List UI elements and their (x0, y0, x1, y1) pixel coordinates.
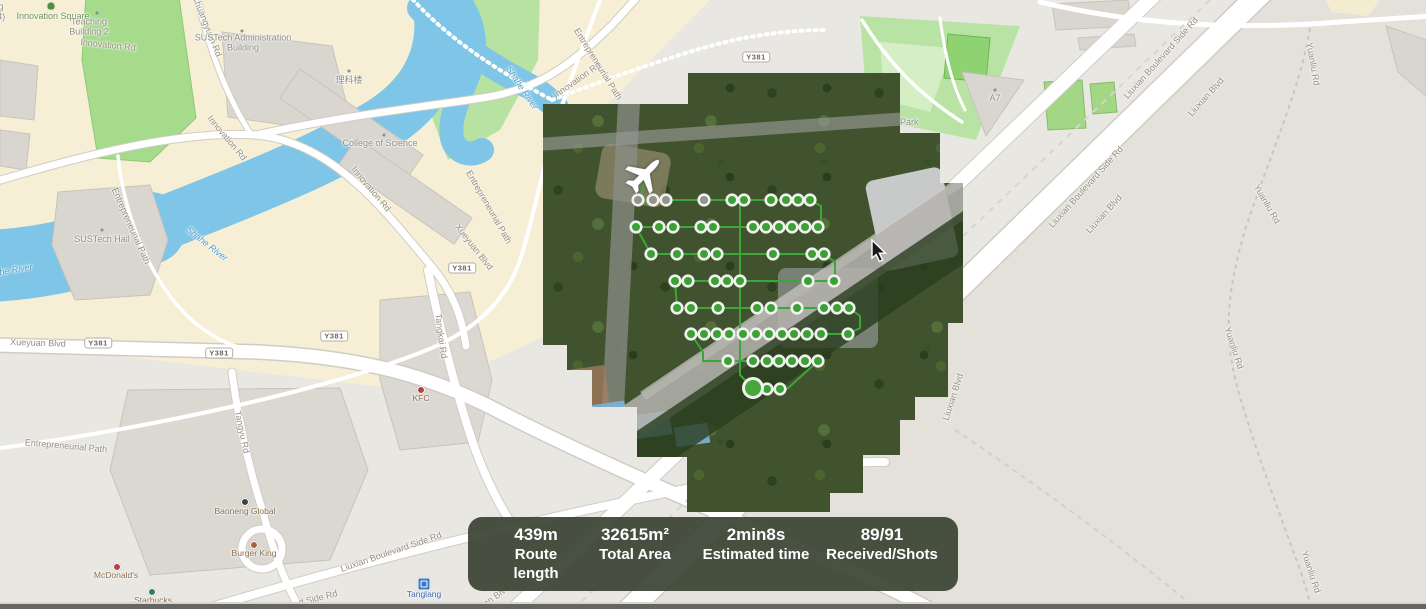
building-dot-icon (241, 30, 244, 33)
road-shield: Y381 (742, 52, 770, 63)
map-label: Liuxian Blvd (1186, 76, 1226, 119)
waypoint[interactable] (710, 276, 721, 287)
waypoint[interactable] (764, 329, 775, 340)
waypoint[interactable] (727, 195, 738, 206)
waypoint[interactable] (670, 276, 681, 287)
waypoint[interactable] (789, 329, 800, 340)
map-label: (Teaching Building 4) (0, 2, 5, 23)
map-label: Innovation Rd (205, 113, 249, 162)
poi-icon (241, 498, 249, 506)
map-label: Entrepreneurial Path (464, 169, 514, 246)
road-shield: Y381 (448, 263, 476, 274)
total-area-value: 32615m² (580, 525, 690, 545)
waypoint[interactable] (813, 356, 824, 367)
waypoint[interactable] (774, 222, 785, 233)
waypoint[interactable] (748, 222, 759, 233)
waypoint[interactable] (735, 276, 746, 287)
building-dot-icon (96, 12, 99, 15)
waypoint[interactable] (793, 195, 804, 206)
waypoint[interactable] (708, 222, 719, 233)
map-label: Shahe River (504, 65, 540, 112)
map-label: Liuxian Blvd (1084, 193, 1124, 236)
road-shield: Y381 (205, 348, 233, 359)
waypoint[interactable] (672, 249, 683, 260)
map-label: KFC (413, 394, 430, 404)
waypoint[interactable] (805, 195, 816, 206)
map-label: Entrepreneurial Path (24, 437, 107, 455)
waypoint[interactable] (699, 249, 710, 260)
map-label: Yuanliu Rd (1252, 183, 1283, 226)
waypoint[interactable] (712, 329, 723, 340)
waypoint[interactable] (774, 356, 785, 367)
waypoint[interactable] (739, 195, 750, 206)
estimated-time-value: 2min8s (690, 525, 822, 545)
waypoint[interactable] (712, 249, 723, 260)
waypoint[interactable] (724, 329, 735, 340)
aerial-road-horizontal (538, 112, 908, 151)
drone-mapping-app: Innovation RdInnovation RdInnovation RdI… (0, 0, 1426, 609)
map-label: SUSTech Administration Building (195, 33, 292, 54)
received-shots-value: 89/91 (822, 525, 942, 545)
map-label: Entrepreneurial Path (109, 186, 152, 266)
waypoint[interactable] (832, 303, 843, 314)
map-label: College of Science (342, 138, 417, 148)
building-dot-icon (383, 134, 386, 137)
waypoint[interactable] (686, 303, 697, 314)
road-shield: Y381 (320, 331, 348, 342)
poi-icon (250, 541, 258, 549)
waypoint[interactable] (696, 222, 707, 233)
waypoint[interactable] (781, 195, 792, 206)
waypoint[interactable] (819, 303, 830, 314)
map-label: Yuanliu Rd (1222, 326, 1245, 371)
waypoint[interactable] (762, 356, 773, 367)
waypoint[interactable] (748, 356, 759, 367)
home-point[interactable] (744, 379, 763, 398)
waypoint[interactable] (686, 329, 697, 340)
waypoint[interactable] (803, 276, 814, 287)
map-label: Tangyu Rd (232, 410, 251, 454)
waypoint[interactable] (800, 356, 811, 367)
waypoint[interactable] (792, 303, 803, 314)
map-label: McDonald's (94, 571, 138, 581)
waypoint[interactable] (777, 329, 788, 340)
poi-icon (148, 588, 156, 596)
waypoint[interactable] (800, 222, 811, 233)
map-label: Xueyuan Blvd (10, 337, 66, 349)
waypoint[interactable] (646, 249, 657, 260)
waypoint[interactable] (843, 329, 854, 340)
poi-icon (417, 386, 425, 394)
waypoint-captured[interactable] (699, 195, 710, 206)
stat-received-shots: 89/91 Received/Shots (822, 525, 942, 583)
map-label: 理科楼 (335, 75, 362, 85)
waypoint[interactable] (738, 329, 749, 340)
map-label: Liuxian Boulevard Side Rd (339, 530, 443, 574)
map-label: Tangkai Rd (433, 313, 450, 359)
waypoint[interactable] (813, 222, 824, 233)
waypoint[interactable] (807, 249, 818, 260)
waypoint[interactable] (713, 303, 724, 314)
waypoint[interactable] (683, 276, 694, 287)
map-label: SUSTech Hall (74, 234, 130, 244)
estimated-time-label: Estimated time (690, 545, 822, 564)
waypoint[interactable] (668, 222, 679, 233)
building-dot-icon (348, 70, 351, 73)
map-label: Chuangyuan Rd (190, 0, 224, 58)
building-dot-icon (101, 229, 104, 232)
map-label: Liuxian Boulevard Side Rd (1047, 144, 1126, 230)
waypoint[interactable] (829, 276, 840, 287)
total-area-label: Total Area (580, 545, 690, 564)
tree-icon (48, 3, 55, 10)
map-label: Burger King (232, 549, 277, 559)
waypoint[interactable] (766, 195, 777, 206)
waypoint[interactable] (723, 356, 734, 367)
waypoint[interactable] (787, 356, 798, 367)
map-label: Teaching Building 2 (69, 17, 109, 38)
route-length-value: 439m (492, 525, 580, 545)
road-shield: Y381 (84, 338, 112, 349)
waypoint[interactable] (751, 329, 762, 340)
map-label: Shahe River (184, 225, 229, 264)
waypoint-captured[interactable] (633, 195, 644, 206)
waypoint[interactable] (787, 222, 798, 233)
stat-total-area: 32615m² Total Area (580, 525, 690, 583)
bottom-edge-strip (0, 602, 1426, 609)
map-label: Innovation Rd (80, 37, 136, 53)
waypoint-captured[interactable] (661, 195, 672, 206)
waypoint[interactable] (761, 222, 772, 233)
waypoint[interactable] (654, 222, 665, 233)
waypoint[interactable] (699, 329, 710, 340)
waypoint[interactable] (802, 329, 813, 340)
metro-station-icon (418, 578, 431, 591)
map-label: Xueyuan Blvd (453, 222, 495, 272)
map-label: Tanglang (407, 590, 442, 600)
route-length-label: Route length (492, 545, 580, 583)
waypoint[interactable] (775, 384, 786, 395)
waypoint[interactable] (816, 329, 827, 340)
stat-route-length: 439m Route length (492, 525, 580, 583)
building-dot-icon (994, 89, 997, 92)
waypoint[interactable] (631, 222, 642, 233)
waypoint[interactable] (819, 249, 830, 260)
map-label: A7 (989, 93, 1000, 103)
poi-icon (113, 563, 121, 571)
waypoint-captured[interactable] (648, 195, 659, 206)
waypoint[interactable] (766, 303, 777, 314)
map-label: Yuanliu Rd (1304, 42, 1322, 87)
map-label: Innovation Rd (551, 60, 602, 100)
map-label: Innovation Rd (349, 164, 393, 213)
map-label: Innovation Square (16, 11, 89, 21)
map-label: IPark (897, 117, 918, 127)
received-shots-label: Received/Shots (822, 545, 942, 564)
map-label: Entrepreneurial Path (572, 26, 625, 101)
waypoint[interactable] (752, 303, 763, 314)
mission-stats-panel: 439m Route length 32615m² Total Area 2mi… (468, 517, 958, 591)
waypoint[interactable] (722, 276, 733, 287)
waypoint[interactable] (768, 249, 779, 260)
map-label: Yuanliu Rd (1299, 550, 1322, 595)
waypoint[interactable] (672, 303, 683, 314)
map-label: Shahe River (0, 262, 33, 281)
waypoint[interactable] (844, 303, 855, 314)
stat-estimated-time: 2min8s Estimated time (690, 525, 822, 583)
map-label: Baoneng Global (215, 507, 276, 517)
map-label: Liuxian Boulevard Side Rd (1122, 15, 1201, 101)
